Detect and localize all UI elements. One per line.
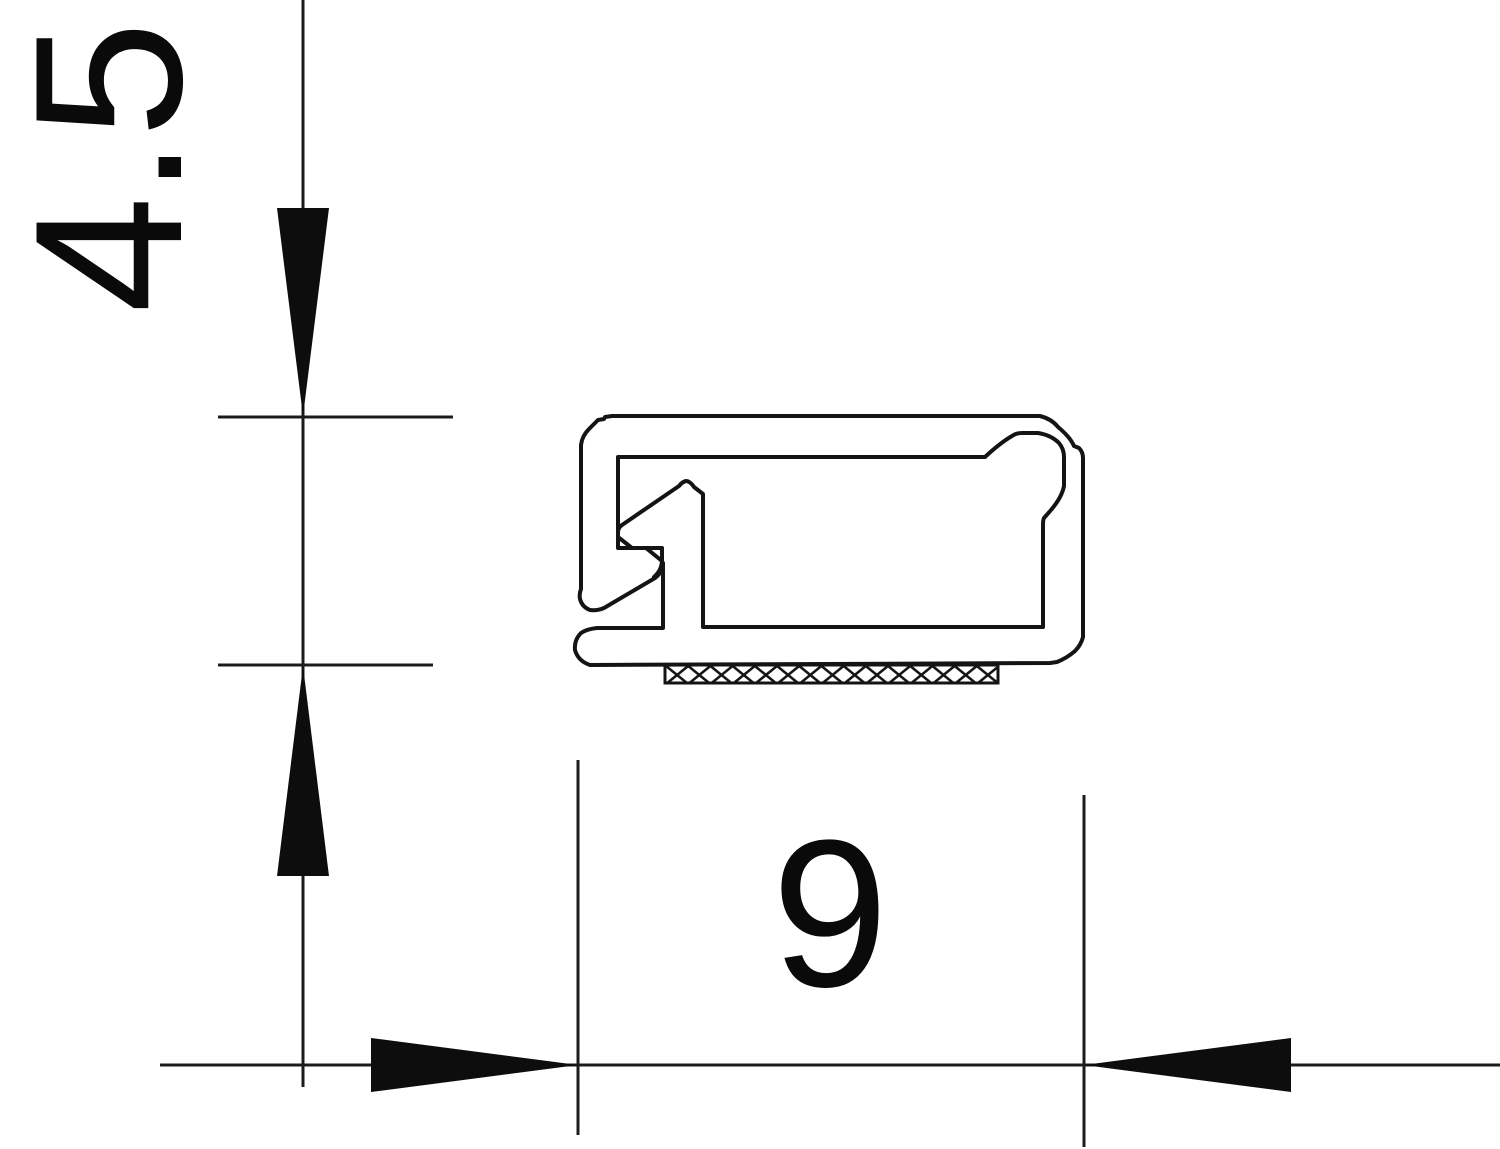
dim-label-height: 4.5 xyxy=(0,21,226,313)
arrow-down-icon xyxy=(277,208,329,416)
arrow-right-icon xyxy=(371,1038,578,1092)
horizontal-dimension: 9 xyxy=(160,760,1500,1147)
dim-label-width: 9 xyxy=(772,796,889,1031)
vertical-dimension: 4.5 xyxy=(0,0,453,1087)
profile-outline-group xyxy=(575,416,1083,665)
arrow-up-icon xyxy=(277,666,329,876)
technical-drawing-canvas: 4.5 9 xyxy=(0,0,1500,1149)
adhesive-tape-strip xyxy=(665,665,998,683)
arrow-left-icon xyxy=(1084,1038,1291,1092)
seal-profile-drawing: 4.5 9 xyxy=(0,0,1500,1149)
tape-crosshatch-fill xyxy=(665,665,998,683)
profile-inner-cavity xyxy=(618,433,1064,627)
